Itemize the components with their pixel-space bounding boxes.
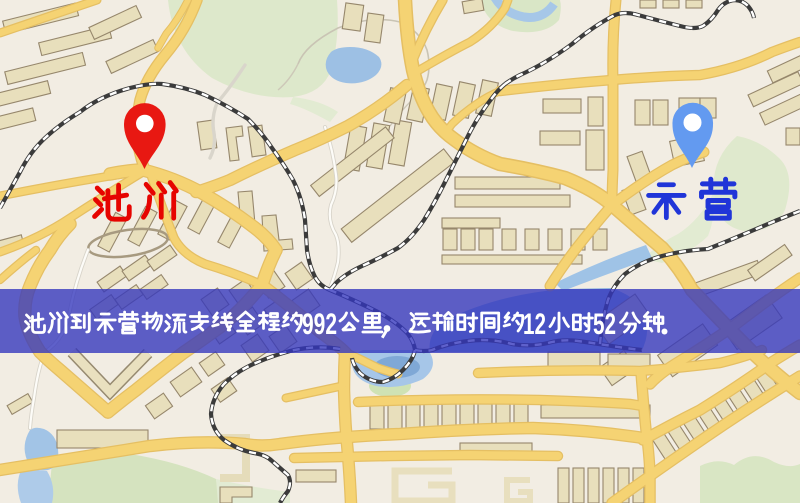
svg-text:12: 12 [523, 308, 546, 341]
svg-text:992: 992 [302, 308, 337, 341]
svg-text:52: 52 [593, 308, 616, 341]
